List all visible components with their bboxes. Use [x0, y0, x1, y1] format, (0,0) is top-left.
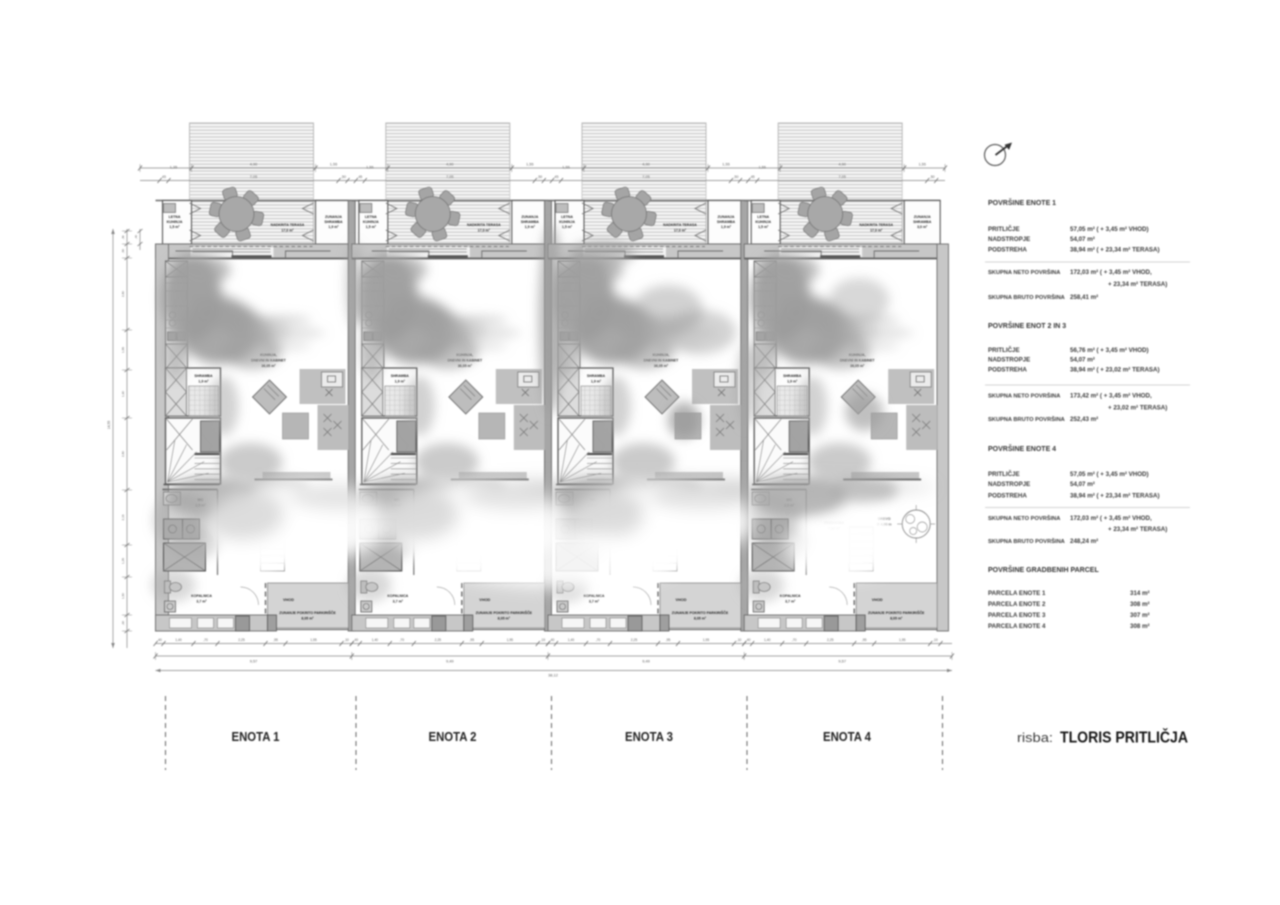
svg-text:,50: ,50: [930, 175, 935, 179]
svg-text:3,7 m²: 3,7 m²: [393, 600, 404, 604]
svg-text:PODSTREHA: PODSTREHA: [988, 247, 1027, 254]
svg-text:,10: ,10: [541, 638, 546, 642]
svg-text:ZUNANJE POKRITO PARKIRIŠČE: ZUNANJE POKRITO PARKIRIŠČE: [672, 610, 729, 615]
svg-text:ZUNANJE POKRITO PARKIRIŠČE: ZUNANJE POKRITO PARKIRIŠČE: [476, 610, 533, 615]
svg-text:PARCELA ENOTE 1: PARCELA ENOTE 1: [988, 590, 1046, 597]
svg-text:SKUPNA BRUTO POVRŠINA: SKUPNA BRUTO POVRŠINA: [988, 293, 1065, 301]
svg-text:4,90: 4,90: [642, 163, 649, 167]
svg-text:2,80: 2,80: [121, 451, 125, 457]
svg-text:1,9 m²: 1,9 m²: [591, 380, 602, 384]
svg-text:7,05: 7,05: [642, 175, 649, 179]
svg-text:LETNA: LETNA: [757, 215, 769, 219]
svg-text:ENOTA 4: ENOTA 4: [823, 729, 872, 744]
svg-text:PARCELA ENOTE 3: PARCELA ENOTE 3: [988, 612, 1046, 619]
svg-text:1,5 m²: 1,5 m²: [366, 225, 377, 229]
svg-text:,95: ,95: [862, 638, 867, 642]
svg-text:14,55: 14,55: [107, 421, 111, 430]
svg-text:POVRŠINE ENOTE 1: POVRŠINE ENOTE 1: [988, 198, 1056, 207]
svg-text:1,55: 1,55: [562, 166, 569, 170]
svg-text:1,40: 1,40: [764, 638, 771, 642]
svg-text:+ 23,34 m² TERASA): + 23,34 m² TERASA): [1108, 281, 1167, 288]
svg-text:172,03 m² ( + 3,45 m² VHOD,: 172,03 m² ( + 3,45 m² VHOD,: [1070, 515, 1152, 522]
svg-text:SHRAMBA: SHRAMBA: [913, 220, 932, 224]
svg-text:307 m²: 307 m²: [1130, 612, 1150, 619]
svg-text:,50: ,50: [734, 175, 739, 179]
svg-text:3,7 m²: 3,7 m²: [196, 600, 207, 604]
svg-text:,70: ,70: [792, 638, 797, 642]
svg-text:KUHINJA: KUHINJA: [559, 220, 575, 224]
svg-text:1,9 m²: 1,9 m²: [198, 380, 209, 384]
svg-text:314 m²: 314 m²: [1130, 590, 1150, 597]
svg-text:258,41 m²: 258,41 m²: [1070, 294, 1098, 301]
svg-text:SHRAMBA: SHRAMBA: [783, 374, 802, 378]
svg-text:7,05: 7,05: [839, 175, 846, 179]
svg-text:1,5 m²: 1,5 m²: [758, 225, 769, 229]
svg-text:NADSTROPJE: NADSTROPJE: [988, 481, 1030, 488]
svg-text:57,05 m² ( + 3,45 m² VHOD): 57,05 m² ( + 3,45 m² VHOD): [1070, 471, 1149, 478]
svg-text:TLORIS PRITLIČJA: TLORIS PRITLIČJA: [1060, 728, 1188, 747]
svg-text:56,76 m² ( + 3,45 m² VHOD): 56,76 m² ( + 3,45 m² VHOD): [1070, 347, 1149, 354]
svg-text:8,05 m²: 8,05 m²: [694, 617, 707, 621]
svg-text:1,9 m²: 1,9 m²: [328, 225, 339, 229]
svg-text:SKUPNA NETO POVRŠINA: SKUPNA NETO POVRŠINA: [988, 392, 1060, 400]
svg-text:17,0 m²: 17,0 m²: [281, 229, 294, 233]
svg-text:1,95: 1,95: [507, 638, 514, 642]
svg-text:PRITLIČJE: PRITLIČJE: [988, 471, 1020, 478]
svg-text:NADSTROPJE: NADSTROPJE: [988, 357, 1030, 364]
svg-text:NADKRITA TERASA: NADKRITA TERASA: [663, 223, 697, 227]
svg-text:KUHINJA: KUHINJA: [363, 220, 379, 224]
svg-text:3,7 m²: 3,7 m²: [589, 600, 600, 604]
svg-text:LETNA: LETNA: [169, 215, 181, 219]
svg-text:17,0 m²: 17,0 m²: [674, 229, 687, 233]
svg-text:VHOD: VHOD: [676, 598, 687, 602]
svg-text:ENOTA 2: ENOTA 2: [429, 729, 477, 744]
svg-text:VHOD: VHOD: [479, 598, 490, 602]
svg-text:1,55: 1,55: [330, 163, 337, 167]
svg-text:1,35: 1,35: [170, 166, 177, 170]
svg-text:ENOTA 3: ENOTA 3: [625, 729, 673, 744]
svg-text:7,05: 7,05: [250, 175, 257, 179]
svg-text:4,90: 4,90: [839, 163, 846, 167]
svg-text:38,94 m² ( + 23,02 m² TERASA): 38,94 m² ( + 23,02 m² TERASA): [1070, 367, 1160, 374]
svg-text:VHOD: VHOD: [872, 598, 883, 602]
svg-text:8,05 m²: 8,05 m²: [301, 617, 314, 621]
svg-text:,50: ,50: [121, 249, 125, 254]
svg-text:KOPALNICA: KOPALNICA: [387, 594, 408, 598]
svg-text:LETNA: LETNA: [365, 215, 377, 219]
svg-text:54,07 m²: 54,07 m²: [1070, 236, 1095, 243]
svg-text:,10: ,10: [344, 638, 349, 642]
svg-text:POVRŠINE ENOTE 4: POVRŠINE ENOTE 4: [988, 444, 1056, 453]
svg-text:SHRAMBA: SHRAMBA: [391, 374, 410, 378]
svg-text:KUHINJA: KUHINJA: [755, 220, 771, 224]
svg-text:17,0 m²: 17,0 m²: [478, 229, 491, 233]
svg-text:2,25: 2,25: [435, 638, 442, 642]
svg-text:248,24 m²: 248,24 m²: [1070, 538, 1098, 545]
svg-text:NADKRITA TERASA: NADKRITA TERASA: [271, 223, 305, 227]
svg-text:SHRAMBA: SHRAMBA: [194, 374, 213, 378]
svg-text:,95: ,95: [666, 638, 671, 642]
svg-text:1,5 m²: 1,5 m²: [169, 225, 180, 229]
svg-text:1,55: 1,55: [722, 163, 729, 167]
svg-text:1,55: 1,55: [919, 163, 926, 167]
svg-text:9,57: 9,57: [838, 659, 846, 664]
svg-text:ZUNANJA: ZUNANJA: [521, 215, 538, 219]
svg-text:,40: ,40: [354, 638, 359, 642]
svg-text:2,25: 2,25: [631, 638, 638, 642]
svg-text:9,49: 9,49: [642, 659, 650, 664]
svg-text:+ 23,34 m² TERASA): + 23,34 m² TERASA): [1108, 526, 1167, 533]
svg-text:PODSTREHA: PODSTREHA: [988, 493, 1027, 500]
svg-text:173,42 m² ( + 3,45 m² VHOD,: 173,42 m² ( + 3,45 m² VHOD,: [1070, 393, 1152, 400]
svg-text:3,0 m²: 3,0 m²: [917, 225, 928, 229]
svg-text:,45: ,45: [554, 175, 559, 179]
svg-text:1,90: 1,90: [121, 391, 125, 397]
svg-text:1,95: 1,95: [703, 638, 710, 642]
svg-text:risba:: risba:: [1017, 730, 1053, 745]
svg-text:,70: ,70: [203, 638, 208, 642]
svg-text:PARCELA ENOTE 4: PARCELA ENOTE 4: [988, 623, 1046, 630]
svg-text:SHRAMBA: SHRAMBA: [521, 220, 540, 224]
svg-text:4,90: 4,90: [446, 163, 453, 167]
svg-text:,70: ,70: [400, 638, 405, 642]
svg-text:PRITLIČJE: PRITLIČJE: [988, 226, 1020, 233]
svg-text:17,0 m²: 17,0 m²: [870, 229, 883, 233]
svg-text:NADSTROPJE: NADSTROPJE: [988, 236, 1030, 243]
svg-text:,60: ,60: [121, 621, 125, 626]
svg-text:57,05 m² ( + 3,45 m² VHOD): 57,05 m² ( + 3,45 m² VHOD): [1070, 226, 1149, 233]
svg-text:1,40: 1,40: [372, 638, 379, 642]
svg-text:,50: ,50: [537, 175, 542, 179]
svg-text:SHRAMBA: SHRAMBA: [717, 220, 736, 224]
svg-text:2,25: 2,25: [238, 638, 245, 642]
svg-text:SKUPNA BRUTO POVRŠINA: SKUPNA BRUTO POVRŠINA: [988, 415, 1065, 423]
svg-text:PODSTREHA: PODSTREHA: [988, 367, 1027, 374]
svg-text:,50: ,50: [341, 175, 346, 179]
svg-text:ZUNANJA: ZUNANJA: [914, 215, 931, 219]
svg-text:SHRAMBA: SHRAMBA: [587, 374, 606, 378]
svg-text:7,05: 7,05: [446, 175, 453, 179]
svg-text:9,49: 9,49: [446, 659, 454, 664]
svg-text:1,9 m²: 1,9 m²: [525, 225, 536, 229]
svg-text:1,9 m²: 1,9 m²: [395, 380, 406, 384]
svg-text:1,55: 1,55: [526, 163, 533, 167]
svg-text:1,40: 1,40: [175, 638, 182, 642]
svg-text:1,55: 1,55: [759, 166, 766, 170]
svg-text:,45: ,45: [357, 175, 362, 179]
svg-text:ENOTA 1: ENOTA 1: [232, 729, 280, 744]
svg-text:KOPALNICA: KOPALNICA: [584, 594, 605, 598]
svg-text:,40: ,40: [550, 638, 555, 642]
svg-text:,40: ,40: [746, 638, 751, 642]
svg-text:1,55: 1,55: [366, 166, 373, 170]
svg-text:1,95: 1,95: [899, 638, 906, 642]
svg-text:,45: ,45: [750, 175, 755, 179]
svg-text:4,90: 4,90: [250, 163, 257, 167]
svg-text:1,5 m²: 1,5 m²: [562, 225, 573, 229]
svg-text:1,50: 1,50: [121, 593, 125, 599]
svg-text:252,43 m²: 252,43 m²: [1070, 416, 1098, 423]
svg-text:308 m²: 308 m²: [1130, 601, 1150, 608]
svg-text:,40: ,40: [134, 235, 138, 240]
svg-text:3,7 m²: 3,7 m²: [785, 600, 796, 604]
svg-text:1,55: 1,55: [121, 347, 125, 353]
svg-text:,10: ,10: [933, 638, 938, 642]
svg-text:,10: ,10: [737, 638, 742, 642]
svg-text:+ 23,02 m² TERASA): + 23,02 m² TERASA): [1108, 405, 1167, 412]
svg-text:VHOD: VHOD: [283, 598, 294, 602]
svg-text:LETNA: LETNA: [561, 215, 573, 219]
svg-text:POVRŠINE ENOT 2 IN 3: POVRŠINE ENOT 2 IN 3: [988, 321, 1066, 330]
svg-text:38,94 m² ( + 23,34 m² TERASA): 38,94 m² ( + 23,34 m² TERASA): [1070, 247, 1160, 254]
svg-text:PARCELA ENOTE 2: PARCELA ENOTE 2: [988, 601, 1046, 608]
svg-text:PRITLIČJE: PRITLIČJE: [988, 347, 1020, 354]
svg-text:2,25: 2,25: [827, 638, 834, 642]
svg-text:ZUNANJA: ZUNANJA: [718, 215, 735, 219]
svg-text:38,94 m² ( + 23,34 m² TERASA): 38,94 m² ( + 23,34 m² TERASA): [1070, 493, 1160, 500]
svg-text:POVRŠINE GRADBENIH PARCEL: POVRŠINE GRADBENIH PARCEL: [988, 565, 1099, 574]
svg-text:1,25: 1,25: [121, 558, 125, 564]
svg-text:1,9 m²: 1,9 m²: [787, 380, 798, 384]
svg-text:,40: ,40: [157, 638, 162, 642]
svg-text:,95: ,95: [273, 638, 278, 642]
svg-text:SHRAMBA: SHRAMBA: [324, 220, 343, 224]
svg-text:KUHINJA: KUHINJA: [167, 220, 183, 224]
svg-text:ZUNANJE POKRITO PARKIRIŠČE: ZUNANJE POKRITO PARKIRIŠČE: [279, 610, 336, 615]
svg-text:,70: ,70: [596, 638, 601, 642]
svg-text:,95: ,95: [470, 638, 475, 642]
svg-text:SKUPNA BRUTO POVRŠINA: SKUPNA BRUTO POVRŠINA: [988, 537, 1065, 545]
svg-text:KOPALNICA: KOPALNICA: [780, 594, 801, 598]
svg-text:,45: ,45: [161, 175, 166, 179]
svg-text:1,95: 1,95: [310, 638, 317, 642]
svg-text:172,03 m² ( + 3,45 m² VHOD,: 172,03 m² ( + 3,45 m² VHOD,: [1070, 269, 1152, 276]
svg-text:NADKRITA TERASA: NADKRITA TERASA: [859, 223, 893, 227]
svg-text:,36: ,36: [121, 235, 125, 240]
svg-text:SKUPNA NETO POVRŠINA: SKUPNA NETO POVRŠINA: [988, 514, 1060, 522]
svg-text:KOPALNICA: KOPALNICA: [191, 594, 212, 598]
svg-text:8,05 m²: 8,05 m²: [890, 617, 903, 621]
svg-text:8,05 m²: 8,05 m²: [498, 617, 511, 621]
svg-text:ZUNANJE POKRITO PARKIRIŠČE: ZUNANJE POKRITO PARKIRIŠČE: [868, 610, 925, 615]
svg-text:ZUNANJA: ZUNANJA: [325, 215, 342, 219]
svg-text:54,07 m²: 54,07 m²: [1070, 357, 1095, 364]
svg-text:1,40: 1,40: [568, 638, 575, 642]
svg-text:SKUPNA NETO POVRŠINA: SKUPNA NETO POVRŠINA: [988, 268, 1060, 276]
svg-text:38,12: 38,12: [548, 673, 558, 678]
svg-text:NADKRITA TERASA: NADKRITA TERASA: [467, 223, 501, 227]
svg-text:1,9 m²: 1,9 m²: [721, 225, 732, 229]
svg-text:2,15: 2,15: [121, 514, 125, 520]
svg-text:2,80: 2,80: [121, 291, 125, 297]
svg-text:54,07 m²: 54,07 m²: [1070, 481, 1095, 488]
svg-text:9,57: 9,57: [250, 659, 258, 664]
svg-text:308 m²: 308 m²: [1130, 623, 1150, 630]
